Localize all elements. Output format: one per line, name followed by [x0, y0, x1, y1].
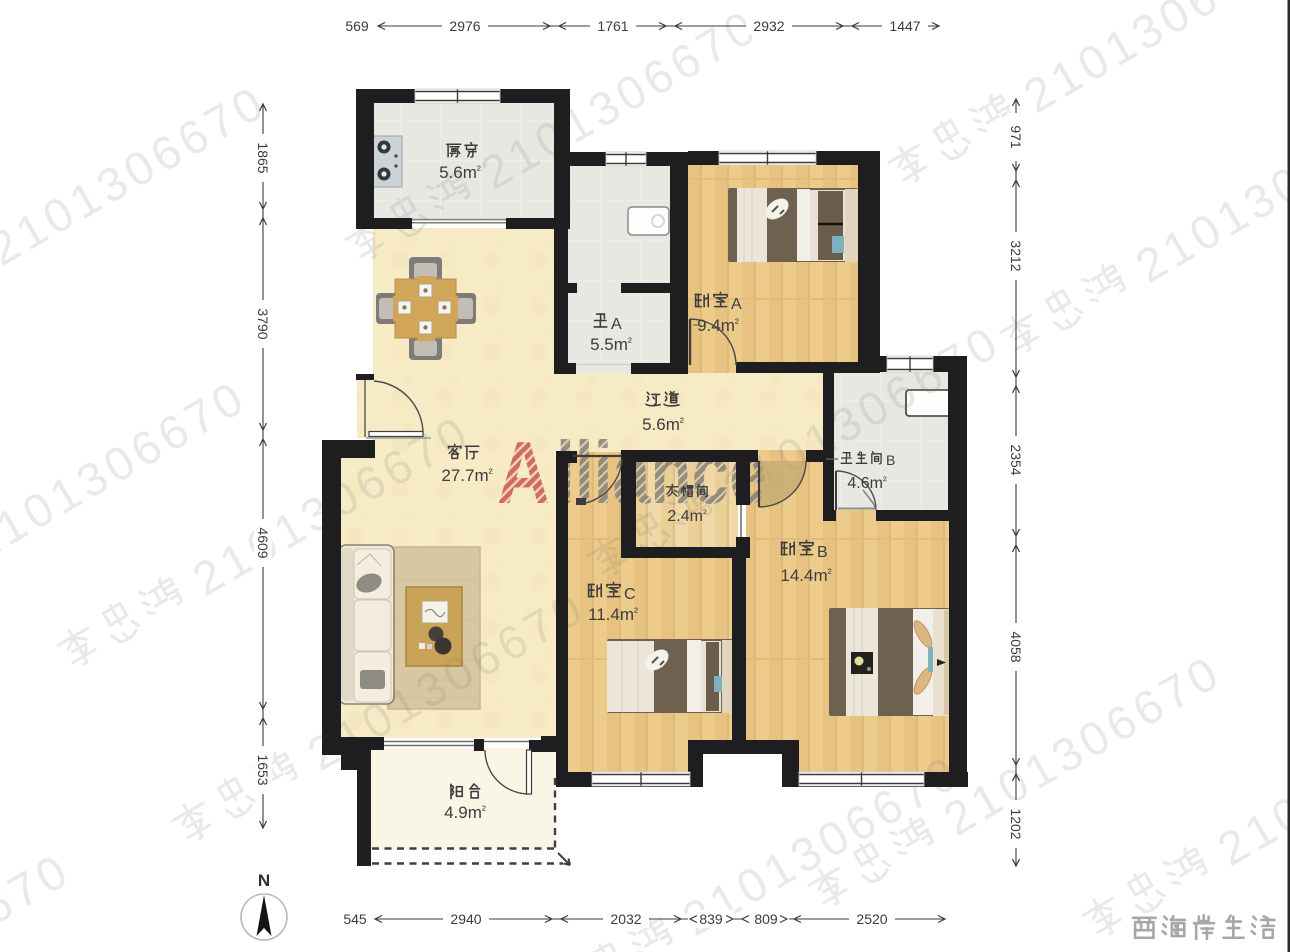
svg-text:A: A: [497, 423, 550, 522]
svg-text:11.4m²: 11.4m²: [588, 605, 638, 624]
svg-text:839: 839: [699, 911, 723, 927]
svg-text:2354: 2354: [1008, 444, 1024, 475]
svg-text:2032: 2032: [610, 911, 641, 927]
svg-text:9.4m²: 9.4m²: [697, 316, 739, 335]
svg-text:971: 971: [1008, 125, 1024, 149]
svg-text:569: 569: [345, 18, 369, 34]
svg-text:3212: 3212: [1008, 240, 1024, 271]
svg-text:3790: 3790: [255, 308, 271, 339]
svg-text:1447: 1447: [889, 18, 920, 34]
svg-text:14.4m²: 14.4m²: [780, 566, 831, 585]
svg-text:4609: 4609: [255, 527, 271, 558]
svg-text:809: 809: [754, 911, 778, 927]
svg-text:2932: 2932: [753, 18, 784, 34]
svg-text:545: 545: [343, 911, 367, 927]
svg-text:1865: 1865: [255, 142, 271, 173]
svg-text:2940: 2940: [450, 911, 481, 927]
svg-text:B: B: [886, 452, 895, 468]
svg-text:A: A: [731, 296, 742, 313]
svg-text:5.6m²: 5.6m²: [439, 163, 481, 182]
svg-text:4.9m²: 4.9m²: [444, 803, 486, 822]
svg-text:1202: 1202: [1008, 808, 1024, 839]
svg-text:4.6m²: 4.6m²: [847, 475, 887, 492]
svg-text:1653: 1653: [255, 754, 271, 785]
svg-text:27.7m²: 27.7m²: [441, 466, 492, 485]
svg-text:1761: 1761: [597, 18, 628, 34]
svg-text:B: B: [817, 544, 828, 561]
svg-text:A: A: [611, 316, 622, 333]
svg-text:C: C: [624, 586, 636, 603]
svg-text:2520: 2520: [856, 911, 887, 927]
svg-text:4058: 4058: [1008, 631, 1024, 662]
svg-text:2.4m²: 2.4m²: [667, 508, 707, 525]
svg-text:5.5m²: 5.5m²: [590, 335, 632, 354]
svg-text:2976: 2976: [449, 18, 480, 34]
svg-text:N: N: [258, 871, 270, 890]
svg-text:lliance: lliance: [556, 423, 767, 522]
svg-text:5.6m²: 5.6m²: [642, 415, 684, 434]
